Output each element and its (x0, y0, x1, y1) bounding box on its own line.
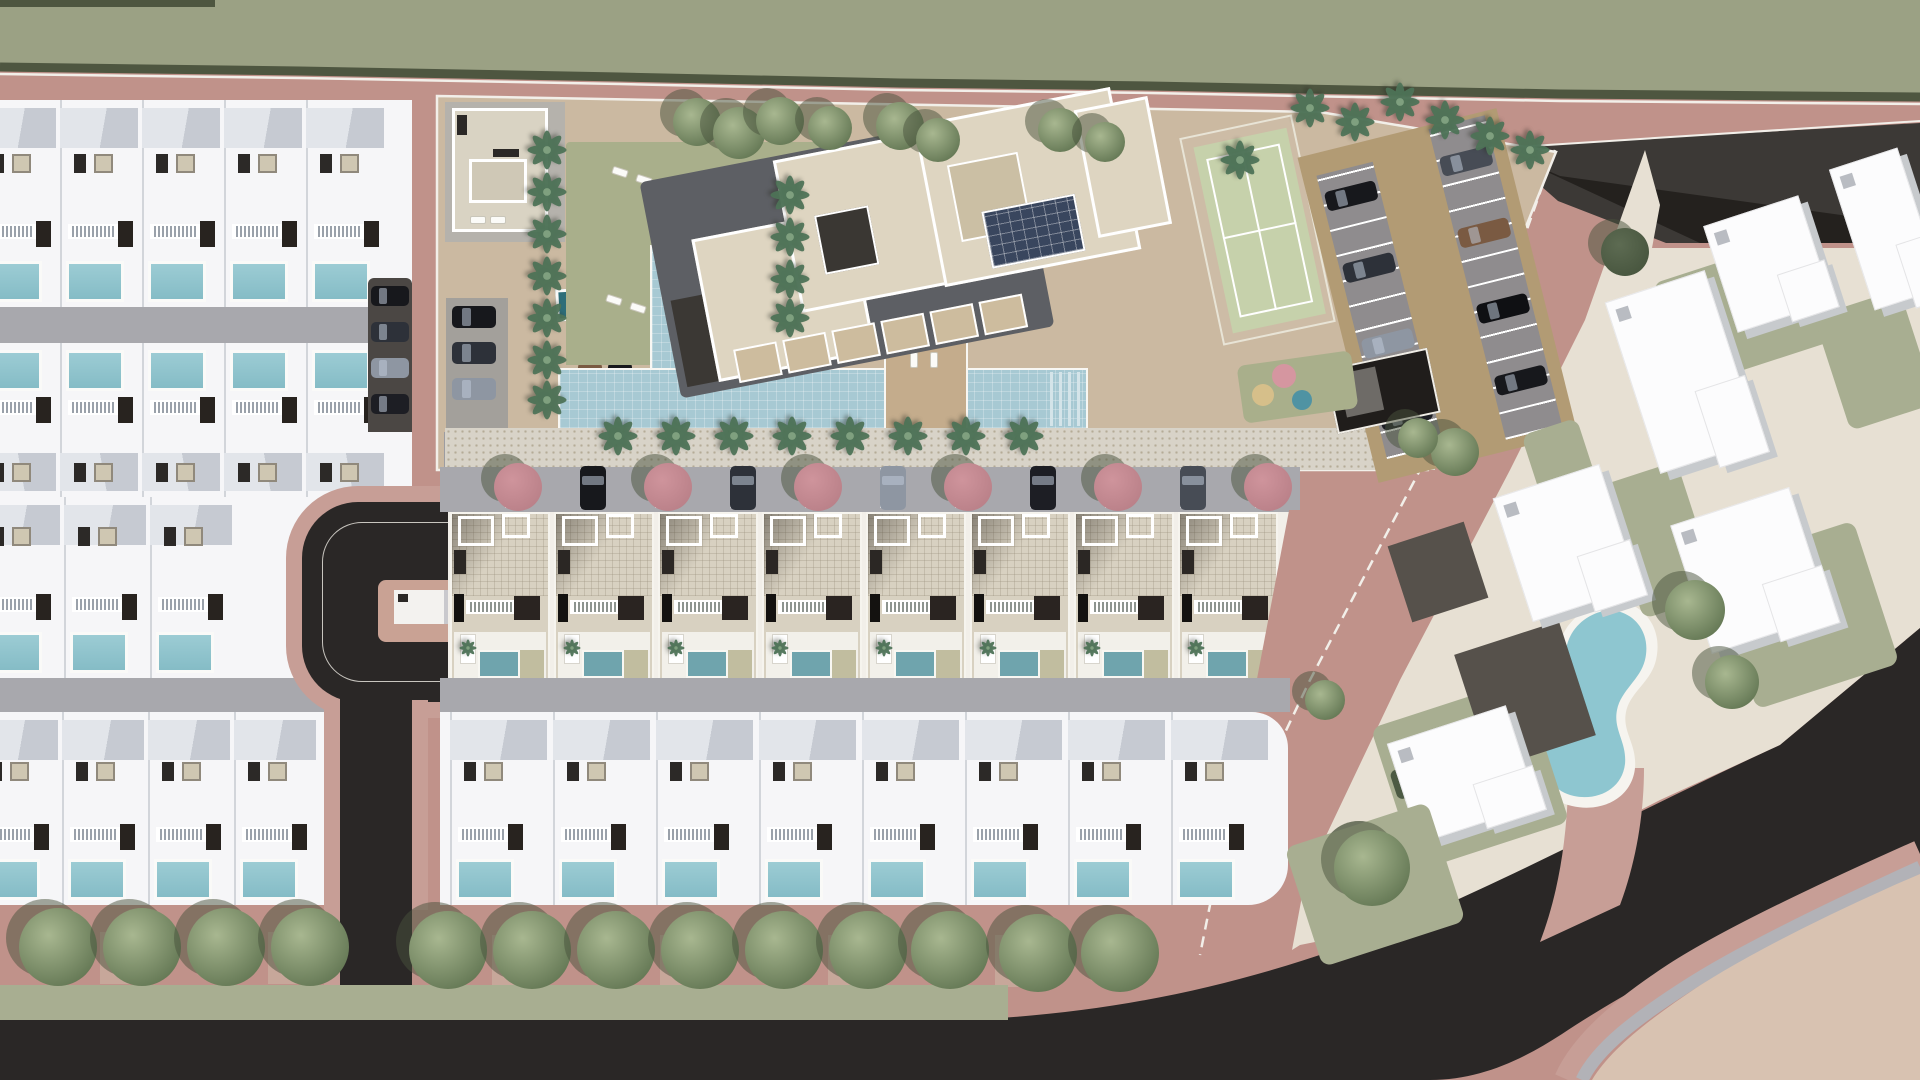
villa-stair-hatch (1082, 762, 1094, 781)
villa (862, 712, 959, 905)
villa-pool (154, 859, 212, 900)
parked-car (371, 358, 409, 378)
villa (62, 712, 144, 905)
parked-car (452, 378, 496, 400)
townhouse-roof-frame (666, 516, 702, 546)
palm-tree-icon (767, 295, 813, 341)
villa-balcony-railing (767, 827, 817, 842)
street (0, 307, 412, 343)
villa-roof (234, 720, 316, 760)
tree-icon (19, 908, 97, 986)
car-windshield (882, 476, 904, 485)
townhouse-balcony-railing (674, 600, 722, 614)
villa-stair-hatch (320, 463, 332, 482)
car-windshield (462, 344, 471, 362)
villa-roof (224, 108, 302, 148)
villa-balcony-railing (68, 400, 118, 415)
villa (234, 712, 316, 905)
palm-tree-icon (524, 377, 570, 423)
villa-stair-hatch (156, 463, 168, 482)
villa-balcony-shade (282, 221, 297, 247)
palm-tree-icon (524, 295, 570, 341)
villa-roof (148, 720, 230, 760)
villa-stair-hatch (464, 762, 476, 781)
car-windshield (462, 308, 471, 326)
palm-tree-icon (524, 127, 570, 173)
villa-balcony-shade (36, 397, 51, 423)
townhouse-balcony-railing (1090, 600, 1138, 614)
villa-skylight (340, 154, 359, 173)
townhouse-balcony-railing (882, 600, 930, 614)
parked-car (1475, 293, 1530, 325)
tree-icon (1094, 463, 1142, 511)
townhouse (450, 512, 550, 680)
townhouse-pool (686, 650, 728, 678)
driveway (368, 278, 412, 432)
villa-pool (66, 350, 124, 391)
villa-roof (862, 720, 959, 760)
townhouse-balcony-column (766, 594, 776, 622)
townhouse-roof-frame (1082, 516, 1118, 546)
villa (64, 497, 146, 678)
villa (656, 712, 753, 905)
tree-icon (103, 908, 181, 986)
townhouse-stair-hatch (454, 550, 466, 574)
villa-pool (559, 859, 617, 900)
tree-icon (409, 911, 487, 989)
villa-balcony-shade (1229, 824, 1244, 850)
tree-crown (944, 463, 992, 511)
villa-skylight (98, 527, 117, 546)
tree-crown (493, 911, 571, 989)
townhouse-balcony-shade (1242, 596, 1268, 620)
stem-sidewalk (412, 700, 428, 910)
tree-icon (911, 911, 989, 989)
villa-balcony-shade (36, 594, 51, 620)
villa-balcony-railing (561, 827, 611, 842)
villa-roof (0, 720, 58, 760)
tree-crown (1431, 428, 1479, 476)
villa-pool (312, 350, 370, 391)
townhouse-deck (728, 650, 752, 678)
townhouse-stair-hatch (1182, 550, 1194, 574)
villa-balcony-shade (200, 397, 215, 423)
villa-roof (553, 720, 650, 760)
townhouse-balcony-column (558, 594, 568, 622)
townhouse-pool (790, 650, 832, 678)
villa-balcony-shade (1023, 824, 1038, 850)
villa-roof (142, 108, 220, 148)
townhouse-roof-frame (814, 514, 842, 538)
villa-skylight (793, 762, 812, 781)
villa (1068, 712, 1165, 905)
tree-crown (103, 908, 181, 986)
townhouse-roof-frame (1022, 514, 1050, 538)
palm-tree-icon (524, 211, 570, 257)
tree-crown (1398, 418, 1438, 458)
tree-crown (1081, 914, 1159, 992)
townhouse-balcony-shade (1034, 596, 1060, 620)
villa-balcony-railing (242, 827, 292, 842)
palm-tree-icon (1082, 638, 1102, 658)
villa-pool (765, 859, 823, 900)
villa (148, 712, 230, 905)
car-windshield (379, 324, 387, 340)
villa-pool (240, 859, 298, 900)
townhouse-balcony-shade (930, 596, 956, 620)
villa-skylight (12, 154, 31, 173)
playground-ball (1272, 364, 1296, 388)
townhouse-balcony-shade (618, 596, 644, 620)
villa (142, 100, 220, 307)
townhouse-balcony-column (662, 594, 672, 622)
villa-balcony-railing (1179, 827, 1229, 842)
tree-crown (577, 911, 655, 989)
villa (965, 712, 1062, 905)
villa-balcony-railing (68, 224, 118, 239)
townhouse-stair-hatch (1078, 550, 1090, 574)
palm-tree-icon (524, 169, 570, 215)
parked-car (371, 286, 409, 306)
villa-roof (656, 720, 753, 760)
villa-pool (0, 261, 42, 302)
villa-pool (68, 859, 126, 900)
villa-balcony-shade (611, 824, 626, 850)
townhouse-stair-hatch (974, 550, 986, 574)
palm-tree-icon (827, 413, 873, 459)
palm-tree-icon (653, 413, 699, 459)
tree-icon (1305, 680, 1345, 720)
villa-stair-hatch (670, 762, 682, 781)
palm-tree-icon (1422, 97, 1468, 143)
townhouse (970, 512, 1070, 680)
villa-pool (0, 632, 42, 673)
villa-stair-hatch (0, 762, 2, 781)
car-windshield (379, 288, 387, 304)
villa (150, 497, 232, 678)
townhouse-balcony-column (870, 594, 880, 622)
villa-skylight (94, 154, 113, 173)
palm-tree-icon (978, 638, 998, 658)
villa-stair-hatch (979, 762, 991, 781)
tree-icon (1601, 228, 1649, 276)
villa-stair-hatch (876, 762, 888, 781)
tree-crown (19, 908, 97, 986)
villa (60, 343, 138, 497)
villa-balcony-railing (70, 827, 120, 842)
townhouse-stair-hatch (662, 550, 674, 574)
tree-icon (577, 911, 655, 989)
palm-tree-icon (711, 413, 757, 459)
villa-balcony-shade (122, 594, 137, 620)
playground-ball (1252, 384, 1274, 406)
villa (759, 712, 856, 905)
island-building (394, 590, 450, 624)
sun-lounger (470, 216, 486, 224)
townhouse-stair-hatch (558, 550, 570, 574)
villa-balcony-railing (72, 597, 122, 612)
pool-steps (1050, 372, 1084, 426)
townhouse-pool (582, 650, 624, 678)
villa-pool (0, 859, 40, 900)
tree-crown (1705, 655, 1759, 709)
car-windshield (1372, 337, 1386, 355)
villa-balcony-railing (973, 827, 1023, 842)
parked-car (880, 466, 906, 510)
townhouse (658, 512, 758, 680)
villa-balcony-railing (232, 400, 282, 415)
lawn-verge (0, 985, 1008, 1020)
townhouse-balcony-railing (570, 600, 618, 614)
tree-icon (644, 463, 692, 511)
townhouse-roof-frame (458, 516, 494, 546)
townhouse-roof-frame (562, 516, 598, 546)
villa-skylight (184, 527, 203, 546)
site-plan-canvas (0, 0, 1920, 1080)
tree-crown (187, 908, 265, 986)
tree-crown (916, 118, 960, 162)
villa-stair-hatch (248, 762, 260, 781)
villa-skylight (258, 154, 277, 173)
tree-icon (493, 911, 571, 989)
villa-pool (230, 350, 288, 391)
villa-roof (0, 108, 56, 148)
villa-skylight (690, 762, 709, 781)
villa-balcony-railing (0, 224, 36, 239)
townhouse-roof-frame (770, 516, 806, 546)
townhouse-balcony-shade (1138, 596, 1164, 620)
hedge-corner (0, 0, 215, 7)
villa-pool (148, 350, 206, 391)
villa-stair-hatch (320, 154, 332, 173)
villa-skylight (10, 762, 29, 781)
villa-skylight (12, 463, 31, 482)
villa-balcony-railing (232, 224, 282, 239)
villa-skylight (999, 762, 1018, 781)
villa-stair-hatch (156, 154, 168, 173)
townhouse-roof-frame (710, 514, 738, 538)
tree-icon (1398, 418, 1438, 458)
villa-skylight (12, 527, 31, 546)
tree-crown (1244, 463, 1292, 511)
villa-roof (62, 720, 144, 760)
tree-crown (409, 911, 487, 989)
villa-pool (312, 261, 370, 302)
palm-tree-icon (1507, 127, 1553, 173)
palm-tree-icon (595, 413, 641, 459)
villa-balcony-railing (0, 597, 36, 612)
palm-tree-icon (885, 413, 931, 459)
tree-icon (999, 914, 1077, 992)
villa (142, 343, 220, 497)
palm-tree-icon (767, 214, 813, 260)
townhouse-balcony-column (454, 594, 464, 622)
tree-icon (1334, 830, 1410, 906)
tree-crown (745, 911, 823, 989)
villa (306, 100, 384, 307)
tree-crown (1085, 122, 1125, 162)
palm-tree-icon (1332, 99, 1378, 145)
villa-roof (60, 108, 138, 148)
pool-house-hatch (493, 149, 519, 157)
villa-stair-hatch (238, 154, 250, 173)
car-windshield (582, 476, 604, 485)
villa-balcony-shade (120, 824, 135, 850)
car-windshield (1450, 154, 1464, 172)
parked-car (580, 466, 606, 510)
villa-pool (1177, 859, 1235, 900)
villa-stair-hatch (1185, 762, 1197, 781)
palm-tree-icon (1001, 413, 1047, 459)
villa-balcony-railing (314, 224, 364, 239)
tree-crown (1665, 580, 1725, 640)
villa-balcony-shade (282, 397, 297, 423)
townhouse-pool (894, 650, 936, 678)
villa (60, 100, 138, 307)
villa-pool (66, 261, 124, 302)
villa-roof (306, 108, 384, 148)
villa-pool (662, 859, 720, 900)
townhouse-stair-hatch (766, 550, 778, 574)
parked-car (1180, 466, 1206, 510)
tree-icon (794, 463, 842, 511)
tree-icon (1705, 655, 1759, 709)
palm-tree-icon (769, 413, 815, 459)
townhouse-balcony-railing (778, 600, 826, 614)
tree-icon (808, 106, 852, 150)
parked-car (1324, 180, 1379, 212)
pool-house-court (469, 159, 527, 203)
townhouse-balcony-railing (1194, 600, 1242, 614)
palm-tree-icon (1287, 85, 1333, 131)
car-windshield (1335, 189, 1349, 207)
villa-skylight (1102, 762, 1121, 781)
villa-balcony-shade (292, 824, 307, 850)
villa-pool (230, 261, 288, 302)
villa-skylight (484, 762, 503, 781)
tree-icon (1431, 428, 1479, 476)
palm-tree-icon (943, 413, 989, 459)
parked-car (1342, 252, 1397, 284)
villa-roof (965, 720, 1062, 760)
villa-stair-hatch (0, 527, 4, 546)
villa-pool (868, 859, 926, 900)
tree-icon (944, 463, 992, 511)
parked-car (452, 306, 496, 328)
tree-icon (1244, 463, 1292, 511)
tree-crown (661, 911, 739, 989)
villa-stair-hatch (0, 154, 4, 173)
tree-icon (661, 911, 739, 989)
villa-balcony-shade (118, 221, 133, 247)
tree-crown (808, 106, 852, 150)
villa-balcony-shade (206, 824, 221, 850)
villa-balcony-railing (1076, 827, 1126, 842)
villa-pool (70, 632, 128, 673)
townhouse-deck (832, 650, 856, 678)
parked-car (452, 342, 496, 364)
villa (0, 100, 56, 307)
tree-icon (1085, 122, 1125, 162)
townhouse-deck (1040, 650, 1064, 678)
villa-stair-hatch (74, 463, 86, 482)
villa (0, 497, 60, 678)
parked-car (1030, 466, 1056, 510)
villa-pool (971, 859, 1029, 900)
villa-roof (1068, 720, 1165, 760)
townhouse-pool (478, 650, 520, 678)
palm-tree-icon (666, 638, 686, 658)
townhouse-roof-frame (1230, 514, 1258, 538)
palm-tree-icon (1217, 137, 1263, 183)
villa-balcony-shade (1126, 824, 1141, 850)
townhouse-pool (1206, 650, 1248, 678)
townhouse-deck (936, 650, 960, 678)
parked-car (371, 322, 409, 342)
villa-skylight (896, 762, 915, 781)
villa-balcony-railing (150, 224, 200, 239)
villa-pool (148, 261, 206, 302)
car-windshield (462, 380, 471, 398)
villa-stair-hatch (164, 527, 176, 546)
villa-balcony-railing (150, 400, 200, 415)
villa-stair-hatch (76, 762, 88, 781)
pool-house-hatch (457, 115, 467, 135)
villa-balcony-railing (314, 400, 364, 415)
car-windshield (1353, 261, 1367, 279)
villa-roof (759, 720, 856, 760)
villa-skylight (182, 762, 201, 781)
parked-car (1493, 364, 1548, 396)
tree-icon (829, 911, 907, 989)
villa (0, 712, 58, 905)
townhouse-roof-frame (874, 516, 910, 546)
villa-skylight (176, 463, 195, 482)
island-building-door (398, 594, 408, 602)
townhouse-roof-frame (978, 516, 1014, 546)
villa-skylight (96, 762, 115, 781)
tree-icon (916, 118, 960, 162)
parked-car (1457, 217, 1512, 249)
townhouse-roof-frame (918, 514, 946, 538)
tree-crown (999, 914, 1077, 992)
villa-pool (156, 632, 214, 673)
townhouse (762, 512, 862, 680)
villa-stair-hatch (74, 154, 86, 173)
villa-skylight (94, 463, 113, 482)
palm-tree-icon (1186, 638, 1206, 658)
tree-crown (1334, 830, 1410, 906)
townhouse-roof-frame (1186, 516, 1222, 546)
villa (224, 343, 302, 497)
villa-roof (450, 720, 547, 760)
villa-balcony-shade (200, 221, 215, 247)
villa-pool (1074, 859, 1132, 900)
townhouse-balcony-shade (722, 596, 748, 620)
palm-tree-icon (874, 638, 894, 658)
townhouse-deck (624, 650, 648, 678)
villa-roof (1171, 720, 1268, 760)
townhouse-stair-hatch (870, 550, 882, 574)
tree-crown (1305, 680, 1345, 720)
palm-tree-icon (1377, 79, 1423, 125)
villa (553, 712, 650, 905)
playground-ball (1292, 390, 1312, 410)
street (440, 678, 1290, 712)
villa-skylight (587, 762, 606, 781)
villa-balcony-shade (920, 824, 935, 850)
apartment-courtyard (814, 205, 879, 274)
